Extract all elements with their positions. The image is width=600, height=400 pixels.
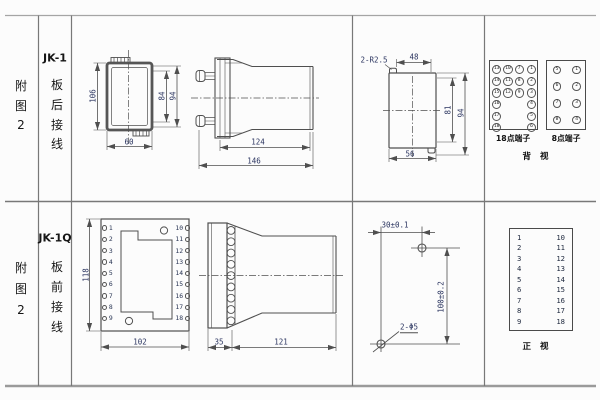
terminal-hole-icon [185,282,190,287]
jk1-side-view-drawing [191,58,319,169]
terminal-number: 3 [109,248,113,254]
dim-radius-callout: 2-R2.5 [360,56,387,64]
terminal-number: 9 [109,315,113,321]
terminal-point: 3 [572,99,581,108]
row1-wiring-char: 线 [51,138,63,150]
terminal-number: 13 [175,259,183,265]
terminal-point: 12 [503,88,512,97]
dim-146: 146 [247,157,261,165]
left-number: 3 [517,255,521,262]
terminal-point: 3 [527,88,536,97]
row2-index-char: 附 [15,262,27,274]
terminal-number: 14 [175,270,183,276]
terminal-number: 7 [109,293,113,299]
terminal-point: 15 [492,88,501,97]
terminal-point: 1 [572,66,581,75]
row2-index-char: 图 [15,283,27,295]
terminal-number: 18 [175,315,183,321]
left-number: 1 [517,234,521,241]
terminal-point: 2 [572,82,581,91]
terminal-hole-icon [102,259,107,264]
terminal-hole-icon [185,259,190,264]
numbering-table-row: 918 [517,318,565,325]
terminal-number: 15 [175,281,183,287]
drilling-plan-drawing [368,227,460,353]
front-terminal-left: 5 [102,270,113,276]
terminal-point: 7 [515,65,524,74]
dim-94: 94 [169,91,177,100]
terminal-number: 5 [109,270,113,276]
front-terminal-right: 15 [172,281,190,287]
left-number: 8 [517,307,521,314]
front-numbering-table: 110211312413514615716817918 [509,228,573,331]
row1-wiring-char: 板 [51,79,63,91]
terminal-point: 14 [492,77,501,86]
terminal-point: 10 [503,65,512,74]
front-terminal-right: 18 [172,315,190,321]
row1-index-char: 图 [15,100,27,112]
terminal-number: 1 [109,225,113,231]
terminal-point: 16 [492,100,501,109]
row2-wiring-char: 前 [51,281,63,293]
terminal-number: 6 [109,281,113,287]
dim-94b: 94 [457,108,465,117]
terminal-hole-icon [185,305,190,310]
front-terminal-left: 6 [102,281,113,287]
terminal-point: 9 [515,88,524,97]
dim-30: 30±0.1 [381,221,408,229]
numbering-table-row: 716 [517,297,565,304]
dim-60: 60 [124,138,133,146]
right-number: 17 [556,307,565,314]
right-number: 16 [556,297,565,304]
dim-124: 124 [251,138,265,146]
terminal-point: 8 [515,77,524,86]
terminal-number: 11 [175,236,183,242]
terminal-point: 8 [553,116,562,125]
dim-81: 81 [444,105,452,114]
right-number: 10 [556,234,565,241]
terminal-hole-icon [185,248,190,253]
row1-index-char: 附 [15,80,27,92]
row2-model-label: JK-1Q [38,233,71,244]
terminal-point: 5 [553,66,562,75]
terminal-number: 2 [109,236,113,242]
terminal-hole-icon [185,316,190,321]
right-number: 14 [556,276,565,283]
dim-106: 106 [89,89,97,103]
front-terminal-right: 16 [172,293,190,299]
left-number: 6 [517,286,521,293]
front-terminal-left: 4 [102,259,113,265]
dim-121: 121 [274,338,288,346]
right-number: 15 [556,286,565,293]
terminal-hole-icon [185,271,190,276]
front-terminal-left: 7 [102,293,113,299]
terminal-hole-icon [102,293,107,298]
dim-102: 102 [133,338,147,346]
left-number: 9 [517,318,521,325]
terminal-hole-icon [185,225,190,230]
terminal-hole-icon [185,293,190,298]
row1-index-char: 2 [17,119,25,131]
dim-118: 118 [82,268,90,282]
terminal-point: 2 [527,77,536,86]
row1-wiring-char: 接 [51,119,63,131]
numbering-table-row: 110 [517,234,565,241]
front-terminal-right: 13 [172,259,190,265]
rear-view-label: 背 视 [523,153,552,162]
row1-wiring-char: 后 [51,99,63,111]
numbering-table-row: 312 [517,255,565,262]
front-terminal-left: 8 [102,304,113,310]
row2-index-char: 2 [17,304,25,316]
front-terminal-right: 10 [172,225,190,231]
terminal-hole-icon [102,316,107,321]
terminal-hole-icon [185,237,190,242]
terminal-number: 8 [109,304,113,310]
dim-48: 48 [409,53,418,61]
terminal-point: 5 [527,112,536,121]
numbering-table-row: 413 [517,265,565,272]
terminal-8pt-label: 8点端子 [552,135,581,143]
front-terminal-right: 12 [172,248,190,254]
front-terminal-left: 1 [102,225,113,231]
terminal-number: 4 [109,259,113,265]
row2-wiring-char: 板 [51,261,63,273]
dim-100: 100±0.2 [437,281,445,313]
terminal-number: 10 [175,225,183,231]
right-number: 18 [556,318,565,325]
row2-wiring-char: 线 [51,321,63,333]
terminal-hole-icon [102,237,107,242]
right-number: 11 [556,244,565,251]
right-number: 12 [556,255,565,262]
left-number: 2 [517,244,521,251]
figure-sheet: 附 图 2 JK-1 板 后 接 线 106 84 94 60 124 146 … [0,0,600,400]
dim-35: 35 [214,338,223,346]
terminal-hole-icon [102,305,107,310]
front-terminal-right: 17 [172,304,190,310]
terminal-point: 4 [572,116,581,125]
front-terminal-left: 2 [102,236,113,242]
terminal-number: 16 [175,293,183,299]
terminal-hole-icon [102,282,107,287]
left-number: 4 [517,265,521,272]
jk1q-side-view-drawing [199,223,343,351]
hole-diameter-callout: 2-Φ5 [400,323,418,333]
terminal-number: 12 [175,248,183,254]
dim-84: 84 [158,91,166,100]
row2-wiring-char: 接 [51,301,63,313]
front-terminal-left: 9 [102,315,113,321]
terminal-point: 4 [527,100,536,109]
left-number: 7 [517,297,521,304]
numbering-table-row: 211 [517,244,565,251]
terminal-point: 6 [553,82,562,91]
terminal-18pt-label: 18点端子 [496,135,530,143]
terminal-number: 17 [175,304,183,310]
dim-56: 56 [405,150,414,158]
terminal-point: 17 [492,112,501,121]
terminal-box-18pt: 131071141182151293164175186 [489,60,538,130]
terminal-hole-icon [102,248,107,253]
numbering-table-row: 514 [517,276,565,283]
numbering-table-row: 817 [517,307,565,314]
terminal-point: 11 [503,77,512,86]
front-terminal-left: 3 [102,248,113,254]
terminal-hole-icon [102,271,107,276]
left-number: 5 [517,276,521,283]
terminal-point: 13 [492,65,501,74]
numbering-table-row: 615 [517,286,565,293]
front-view-label: 正 视 [523,343,552,352]
terminal-point: 7 [553,99,562,108]
terminal-box-8pt: 51627384 [546,60,586,130]
front-terminal-right: 14 [172,270,190,276]
terminal-hole-icon [102,225,107,230]
row1-model-label: JK-1 [43,53,67,64]
front-terminal-right: 11 [172,236,190,242]
terminal-point: 1 [527,65,536,74]
right-number: 13 [556,265,565,272]
